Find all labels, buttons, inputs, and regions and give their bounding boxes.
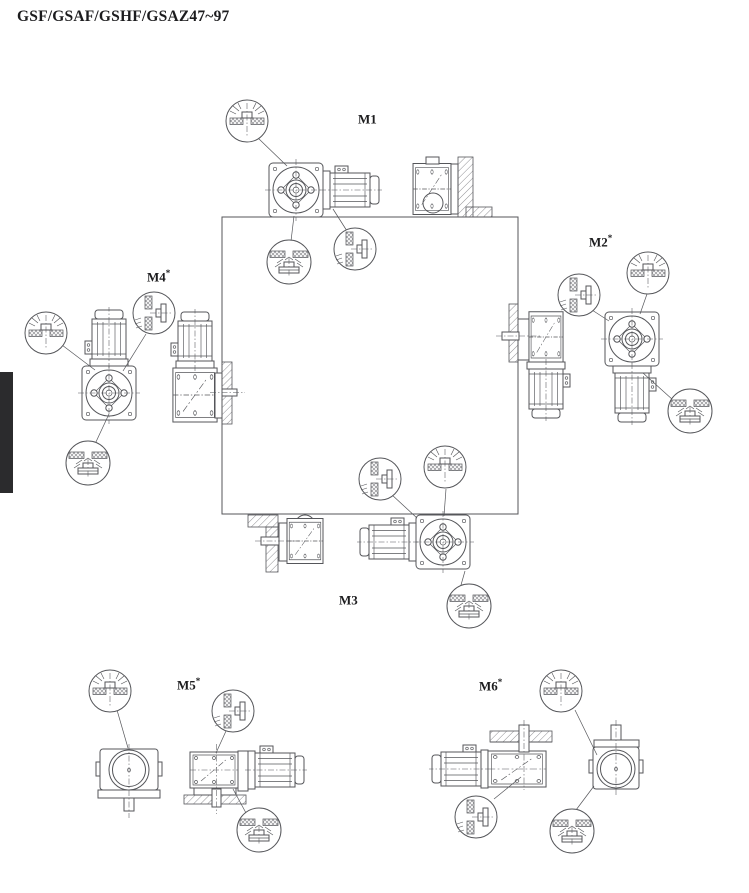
m1-drain-detail [267,240,311,284]
m1-side-view [413,157,492,217]
m2-drain-detail [668,389,712,433]
m5-assembly [89,670,307,852]
m3-assembly [248,446,491,628]
m2-side-view [496,312,570,421]
m3-breather-detail [424,446,466,488]
m4-side-view [171,309,245,422]
m5-breather-detail [89,670,131,712]
m5-side-view [184,744,307,814]
m6-oil-level-detail [455,796,497,838]
m5-drain-detail [237,808,281,852]
m4-drain-detail [66,441,110,485]
m6-side-view [429,720,552,790]
m6-front-view [589,720,643,795]
m6-drain-detail [550,809,594,853]
m1-breather-detail [226,100,268,142]
m4-breather-detail [25,312,67,354]
m2-oil-level-detail [558,274,600,316]
m6-assembly [429,670,643,853]
m5-front-view [96,744,162,818]
m1-assembly [226,100,492,284]
m4-front-view [78,307,140,424]
m3-drain-detail [447,584,491,628]
m4-oil-level-detail [133,292,175,334]
m4-assembly [25,292,245,485]
m3-oil-level-detail [359,458,401,500]
m2-front-view [601,308,663,425]
m2-breather-detail [627,252,669,294]
m5-oil-level-detail [212,690,254,732]
m1-oil-level-detail [334,228,376,270]
section-index-tab [0,372,13,493]
m2-assembly [496,252,712,433]
m3-side-view [248,515,323,572]
m6-breather-detail [540,670,582,712]
m3-front-view [357,511,474,573]
mounting-positions-diagram [0,0,749,893]
